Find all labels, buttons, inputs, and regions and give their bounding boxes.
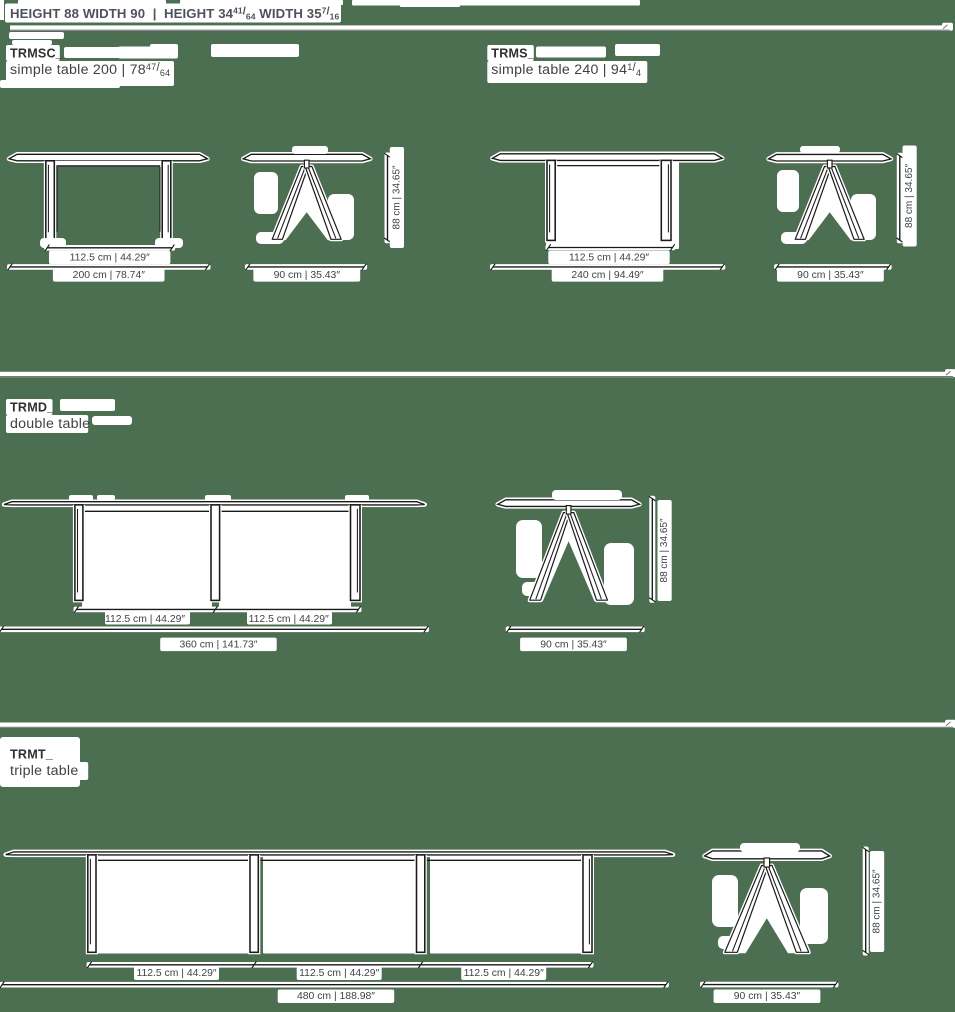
- svg-text:240 cm | 94.49″: 240 cm | 94.49″: [571, 270, 644, 281]
- svg-text:88 cm | 34.65″: 88 cm | 34.65″: [904, 164, 915, 228]
- svg-text:112.5 cm | 44.29″: 112.5 cm | 44.29″: [136, 968, 216, 979]
- svg-text:HEIGHT 88 WIDTH 90 | HEIGHT: HEIGHT 88 WIDTH 90 | HEIGHT 3441/64 WIDT…: [10, 6, 339, 22]
- svg-text:112.5 cm | 44.29″: 112.5 cm | 44.29″: [464, 968, 544, 979]
- svg-text:88 cm | 34.65″: 88 cm | 34.65″: [872, 869, 883, 933]
- svg-text:simple table 240 | 941/4: simple table 240 | 941/4: [491, 62, 641, 78]
- svg-text:90 cm | 35.43″: 90 cm | 35.43″: [274, 270, 341, 281]
- svg-text:88 cm | 34.65″: 88 cm | 34.65″: [659, 518, 670, 582]
- svg-text:200 cm | 78.74″: 200 cm | 78.74″: [73, 270, 146, 281]
- svg-text:112.5 cm | 44.29″: 112.5 cm | 44.29″: [70, 252, 150, 263]
- svg-text:112.5 cm | 44.29″: 112.5 cm | 44.29″: [105, 614, 185, 625]
- svg-text:360 cm | 141.73″: 360 cm | 141.73″: [179, 639, 257, 650]
- svg-text:double table: double table: [10, 416, 90, 432]
- svg-text:TRMS_: TRMS_: [491, 47, 535, 61]
- svg-text:90 cm | 35.43″: 90 cm | 35.43″: [734, 991, 801, 1002]
- svg-text:triple table: triple table: [10, 763, 78, 779]
- svg-text:480 cm | 188.98″: 480 cm | 188.98″: [297, 991, 375, 1002]
- svg-text:90 cm | 35.43″: 90 cm | 35.43″: [797, 270, 864, 281]
- svg-text:112.5 cm | 44.29″: 112.5 cm | 44.29″: [249, 614, 329, 625]
- svg-text:90 cm | 35.43″: 90 cm | 35.43″: [540, 639, 607, 650]
- svg-text:112.5 cm | 44.29″: 112.5 cm | 44.29″: [299, 968, 379, 979]
- svg-text:TRMT_: TRMT_: [10, 748, 54, 762]
- svg-text:TRMSC_: TRMSC_: [10, 47, 64, 61]
- svg-text:112.5 cm | 44.29″: 112.5 cm | 44.29″: [569, 252, 649, 263]
- svg-text:88 cm | 34.65″: 88 cm | 34.65″: [391, 165, 402, 229]
- svg-text:TRMD_: TRMD_: [10, 401, 55, 415]
